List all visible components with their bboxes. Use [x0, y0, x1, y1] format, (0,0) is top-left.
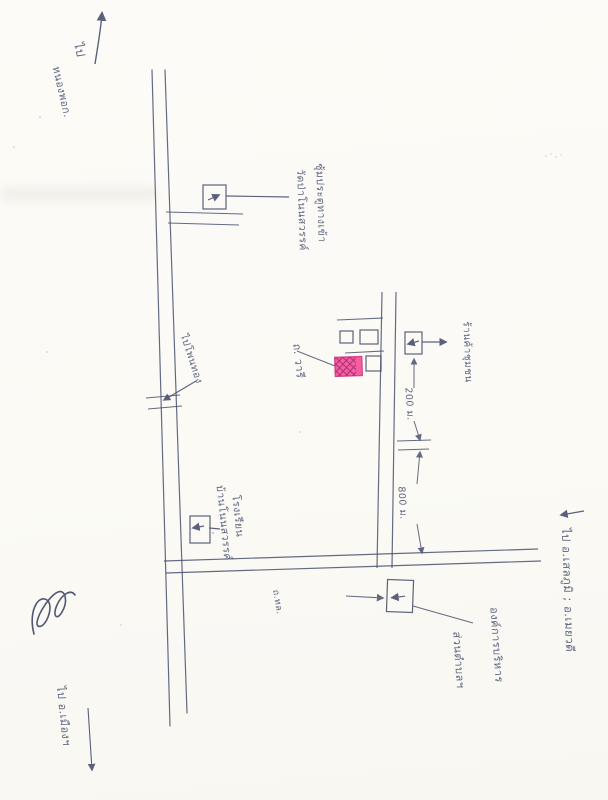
destination-marker: [335, 357, 363, 377]
label-shop: ร้านค้าชุมชน: [458, 321, 475, 383]
south-direction-arrow: [88, 708, 92, 770]
north-direction-arrow: [95, 13, 102, 64]
shop-building-box: [405, 332, 446, 354]
scanned-map-page: ไป หนองพอก. ซุ้มประตูทางเข้า วัดป่าโนนสว…: [0, 0, 608, 800]
sao-approach-arrow: [346, 596, 383, 598]
label-distance-200m: 200 ม.: [400, 387, 417, 420]
right-cross-stub: [397, 440, 431, 450]
label-gate-1: ซุ้มประตูทางเข้า: [311, 163, 331, 243]
left-main-road: [152, 70, 187, 726]
label-gate-2: วัดป่าโนนสวรรค์: [292, 169, 312, 251]
right-vertical-road: [377, 292, 396, 568]
signature-scribble: [32, 592, 75, 634]
sao-pointer-line: [413, 606, 473, 623]
top-side-street: [166, 212, 243, 225]
label-distance-800m: 800 ม.: [393, 486, 410, 519]
east-direction-arrow: [561, 511, 584, 515]
sao-building-box: [386, 580, 413, 613]
map-drawing: [0, 0, 608, 800]
label-to-north-1: ไป: [68, 41, 90, 58]
label-target-road-name: ถ. วารี: [288, 343, 310, 378]
paper-speckles: [13, 116, 561, 626]
gate-building-box: [203, 185, 289, 209]
